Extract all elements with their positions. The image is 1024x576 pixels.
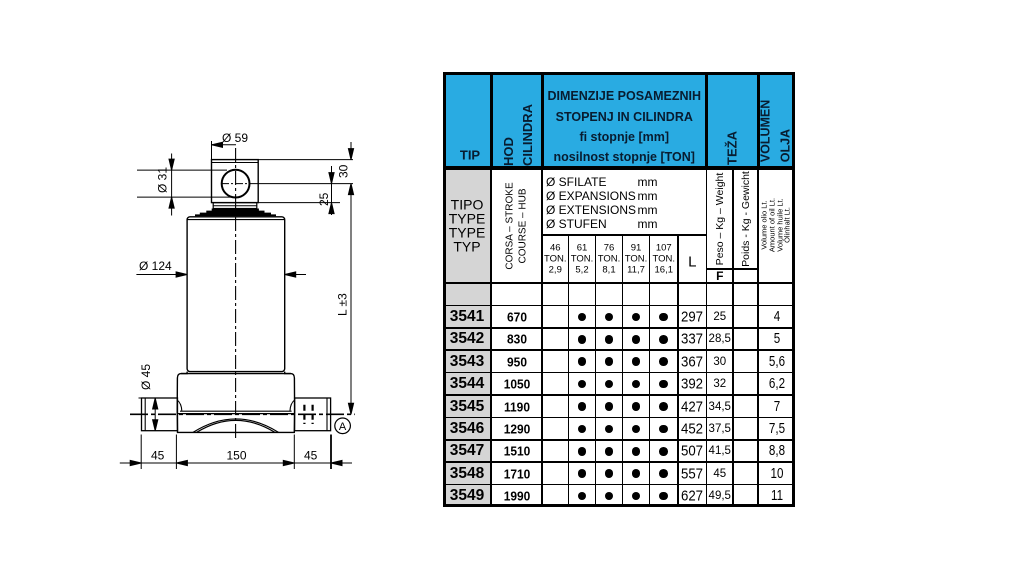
- svg-text:45: 45: [151, 449, 165, 463]
- svg-text:150: 150: [227, 449, 247, 463]
- svg-text:Ø 124: Ø 124: [139, 259, 172, 273]
- svg-text:Ø 45: Ø 45: [139, 364, 153, 390]
- svg-text:25: 25: [317, 192, 331, 206]
- svg-text:A: A: [339, 421, 347, 433]
- svg-text:Ø 59: Ø 59: [222, 131, 248, 145]
- svg-text:Ø 31: Ø 31: [156, 167, 170, 193]
- svg-text:45: 45: [304, 449, 318, 463]
- svg-text:L ±3: L ±3: [336, 293, 350, 316]
- svg-text:30: 30: [337, 164, 351, 178]
